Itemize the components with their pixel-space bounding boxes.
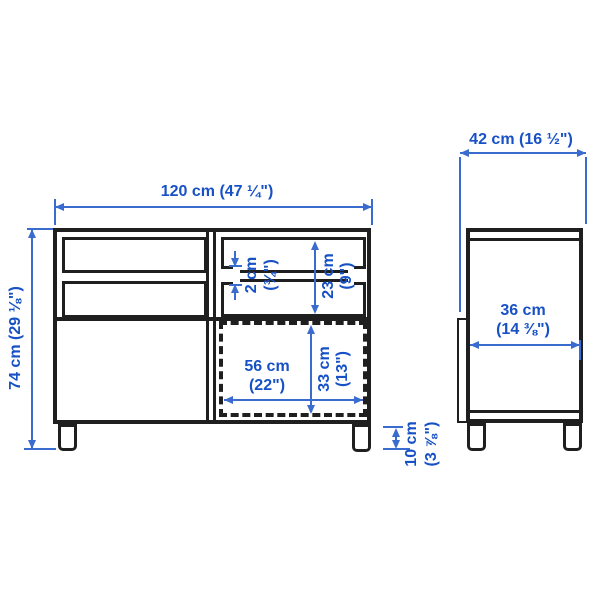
dim-overall-height-line — [31, 229, 33, 449]
side-leg-front — [467, 423, 486, 451]
dim-leg-height-label-cm: 10 cm — [403, 421, 421, 466]
dim-overall-height-label: 74 cm (29 ⅛") — [7, 286, 25, 390]
arrowhead-up-icon — [311, 241, 319, 250]
arrowhead-up-icon — [392, 428, 400, 437]
front-leg-left — [58, 424, 77, 451]
front-shelf-compartment-top — [62, 237, 207, 273]
product-dimension-diagram: 120 cm (47 ¼") 74 cm (29 ⅛") 2 cm (¾") 2… — [0, 0, 600, 600]
dim-door-width-line — [224, 399, 363, 401]
shelf-bracket-right-bottom — [354, 282, 366, 285]
dim-compartment-height-line — [314, 243, 316, 309]
dim-overall-width-label: 120 cm (47 ¼") — [161, 183, 274, 201]
dim-door-width-label-in: (22") — [249, 377, 285, 395]
arrowhead-up-icon — [28, 229, 36, 238]
arrowhead-left-icon — [460, 149, 469, 157]
dim-door-height-label-in: (13") — [334, 351, 352, 387]
dim-overall-depth-ext-right — [585, 157, 587, 224]
dim-overall-width-line — [55, 206, 372, 208]
dim-inner-depth-label-cm: 36 cm — [500, 302, 545, 320]
arrowhead-left-icon — [470, 341, 479, 349]
side-top-panel-line — [469, 238, 580, 241]
front-center-divider-right — [213, 231, 216, 422]
dim-overall-width-ext-left — [54, 199, 56, 225]
dim-overall-width-ext-right — [371, 199, 373, 225]
dim-inner-depth-ext-right — [579, 340, 581, 360]
dim-overall-height-ext-bottom — [24, 448, 56, 450]
arrowhead-right-icon — [354, 396, 363, 404]
side-leg-back — [563, 423, 582, 451]
dim-overall-depth-ext-left — [459, 157, 461, 312]
arrowhead-up-icon — [231, 284, 239, 293]
arrowhead-down-icon — [307, 405, 315, 414]
arrowhead-left-icon — [55, 203, 64, 211]
front-leg-right — [352, 424, 371, 452]
side-bottom-panel-line — [469, 410, 580, 413]
dim-leg-height-label-in: (3 ⅞") — [423, 422, 441, 467]
arrowhead-down-icon — [392, 440, 400, 449]
dim-inner-depth-line — [470, 344, 580, 346]
arrowhead-down-icon — [231, 258, 239, 267]
dim-door-width-label-cm: 56 cm — [244, 358, 289, 376]
dim-compartment-height-label-cm: 23 cm — [320, 253, 338, 298]
dim-door-height-line — [310, 327, 312, 412]
dim-inner-depth-label-in: (14 ⅜") — [496, 321, 550, 339]
arrowhead-up-icon — [307, 325, 315, 334]
dim-shelf-thickness-label-in: (¾") — [262, 259, 280, 291]
dim-overall-height-ext-top — [27, 228, 53, 230]
front-shelf-compartment-bottom — [62, 281, 207, 318]
dim-compartment-height-label-in: (9") — [338, 262, 356, 289]
dim-door-height-label-cm: 33 cm — [316, 346, 334, 391]
shelf-bracket-right-top — [354, 266, 366, 269]
dim-overall-depth-label: 42 cm (16 ½") — [469, 131, 573, 149]
arrowhead-left-icon — [224, 396, 233, 404]
dim-overall-depth-line — [460, 152, 586, 154]
arrowhead-down-icon — [311, 305, 319, 314]
arrowhead-right-icon — [577, 149, 586, 157]
dim-shelf-thickness-label-cm: 2 cm — [243, 257, 261, 293]
